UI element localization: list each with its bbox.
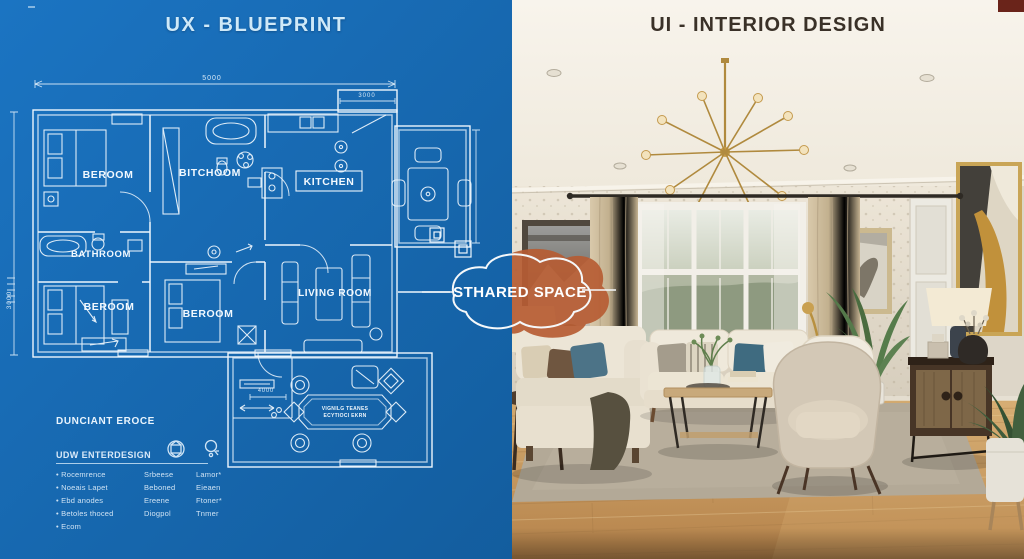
stamp-line2: ECYTIOCI EKRN	[323, 413, 366, 419]
dim-left: 3000	[6, 291, 13, 309]
legend-item: Noeais Lapet	[56, 483, 144, 492]
legend-cell: Lamor*	[196, 470, 246, 479]
legend-item: Ebd anodes	[56, 496, 144, 505]
room-label-living: LIVING ROOM	[298, 288, 372, 299]
stamp-line1: VIGNILG TEANES	[322, 406, 369, 412]
sheer-right	[774, 204, 800, 350]
legend-cell	[196, 522, 246, 531]
dim-entry: 4000	[258, 388, 274, 394]
legend-cell: Ereene	[144, 496, 196, 505]
legend-divider	[56, 463, 208, 464]
legend-item: Betoles thoced	[56, 509, 144, 518]
room-label-kitchen: KITCHEN	[304, 176, 355, 188]
dim-top: 5000	[202, 75, 222, 82]
legend-cell: Srbeese	[144, 470, 196, 479]
legend: DUNCIANT EROCE UDW ENTERDESIGN Rocemrenc…	[56, 416, 266, 531]
bottom-shadow	[512, 528, 1024, 559]
split-comparison: BEROOM BITCHOOM KITCHEN BATHROOM BEROOM …	[0, 0, 1024, 559]
room-label-bedroom-bm: BEROOM	[183, 308, 234, 320]
corner-marker	[998, 0, 1024, 12]
room-label-bedroom-bl: BEROOM	[84, 301, 135, 313]
room-label-bath-top: BITCHOOM	[179, 167, 241, 179]
legend-cell: Diogpol	[144, 509, 196, 518]
room-label-bathroom: BATHROOM	[71, 249, 131, 260]
pillow-grey	[657, 343, 690, 376]
legend-heading: DUNCIANT EROCE	[56, 416, 266, 427]
cube-icon	[165, 438, 187, 460]
legend-cell	[144, 522, 196, 531]
dim-annex: 3000	[358, 93, 375, 99]
legend-table: Rocemrence Srbeese Lamor* Noeais Lapet B…	[56, 470, 266, 531]
shared-space-badge: STHARED SPACE	[420, 238, 640, 350]
ceiling	[512, 0, 1024, 186]
legend-cell: Beboned	[144, 483, 196, 492]
key-icon	[201, 438, 223, 460]
legend-item: Rocemrence	[56, 470, 144, 479]
legend-cell: Eieaen	[196, 483, 246, 492]
legend-item: Ecom	[56, 522, 144, 531]
corner-tick	[28, 6, 35, 8]
legend-cell: Ftoner*	[196, 496, 246, 505]
badge-label: STHARED SPACE	[453, 284, 587, 301]
legend-cell: Tnmer	[196, 509, 246, 518]
legend-subheading: UDW ENTERDESIGN	[56, 450, 151, 460]
room-label-bedroom-tl: BEROOM	[83, 169, 134, 181]
